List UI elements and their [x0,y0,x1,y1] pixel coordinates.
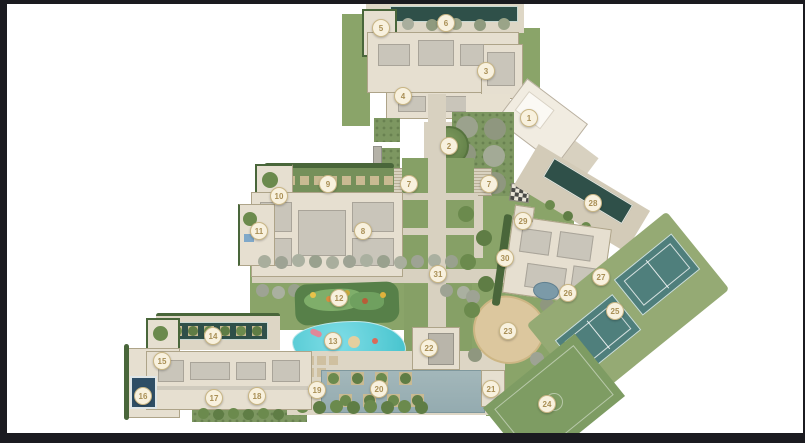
plan-marker-20[interactable]: 20 [370,380,388,398]
plan-marker-label: 26 [564,289,573,298]
plan-marker-label: 17 [210,394,219,403]
plan-marker-8[interactable]: 8 [354,222,372,240]
plan-marker-label: 24 [543,400,552,409]
plan-marker-label: 6 [444,19,448,28]
plan-marker-label: 13 [329,337,338,346]
plan-marker-label: 12 [335,294,344,303]
plan-marker-16[interactable]: 16 [134,387,152,405]
plan-marker-label: 14 [209,332,218,341]
plan-marker-6[interactable]: 6 [437,14,455,32]
plan-marker-label: 16 [139,392,148,401]
plan-marker-15[interactable]: 15 [153,352,171,370]
plan-marker-label: 3 [484,67,488,76]
plan-marker-7[interactable]: 7 [400,175,418,193]
plan-marker-label: 28 [589,199,598,208]
plan-marker-28[interactable]: 28 [584,194,602,212]
plan-marker-label: 5 [379,24,383,33]
plan-marker-label: 20 [375,385,384,394]
plan-marker-label: 22 [425,344,434,353]
plan-marker-18[interactable]: 18 [248,387,266,405]
plan-marker-7[interactable]: 7 [480,175,498,193]
plan-marker-21[interactable]: 21 [482,380,500,398]
plan-marker-label: 15 [158,357,167,366]
plan-marker-label: 4 [401,92,405,101]
plan-marker-17[interactable]: 17 [205,389,223,407]
plan-marker-label: 7 [487,180,491,189]
plan-marker-3[interactable]: 3 [477,62,495,80]
plan-marker-1[interactable]: 1 [520,109,538,127]
plan-marker-label: 9 [326,180,330,189]
masterplan-screenshot: 1234567789101112131415161718192021222324… [0,0,805,443]
frame-left [0,0,7,443]
plan-marker-19[interactable]: 19 [308,381,326,399]
plan-marker-9[interactable]: 9 [319,175,337,193]
plan-marker-30[interactable]: 30 [496,249,514,267]
plan-marker-label: 7 [407,180,411,189]
plan-marker-2[interactable]: 2 [440,137,458,155]
plan-marker-label: 18 [253,392,262,401]
plan-marker-label: 2 [447,142,451,151]
frame-bottom [0,433,805,443]
plan-marker-13[interactable]: 13 [324,332,342,350]
plan-marker-label: 25 [611,307,620,316]
plan-marker-label: 31 [434,270,443,279]
plan-marker-label: 10 [275,192,284,201]
plan-marker-label: 27 [597,273,606,282]
plan-marker-label: 21 [487,385,496,394]
plan-marker-24[interactable]: 24 [538,395,556,413]
plan-marker-27[interactable]: 27 [592,268,610,286]
plan-marker-label: 23 [504,327,513,336]
plan-marker-26[interactable]: 26 [559,284,577,302]
plan-marker-label: 30 [501,254,510,263]
plan-marker-14[interactable]: 14 [204,327,222,345]
plan-marker-4[interactable]: 4 [394,87,412,105]
plan-marker-31[interactable]: 31 [429,265,447,283]
plan-marker-12[interactable]: 12 [330,289,348,307]
plan-marker-5[interactable]: 5 [372,19,390,37]
plan-marker-label: 11 [255,227,263,236]
plan-marker-22[interactable]: 22 [420,339,438,357]
plan-marker-29[interactable]: 29 [514,212,532,230]
plan-marker-11[interactable]: 11 [250,222,268,240]
plan-marker-25[interactable]: 25 [606,302,624,320]
plan-marker-label: 29 [519,217,528,226]
plan-marker-23[interactable]: 23 [499,322,517,340]
plan-marker-label: 19 [313,386,322,395]
plan-marker-label: 8 [361,227,365,236]
plan-marker-10[interactable]: 10 [270,187,288,205]
frame-top [0,0,805,4]
plan-marker-label: 1 [527,114,531,123]
markers-layer: 1234567789101112131415161718192021222324… [0,0,805,443]
